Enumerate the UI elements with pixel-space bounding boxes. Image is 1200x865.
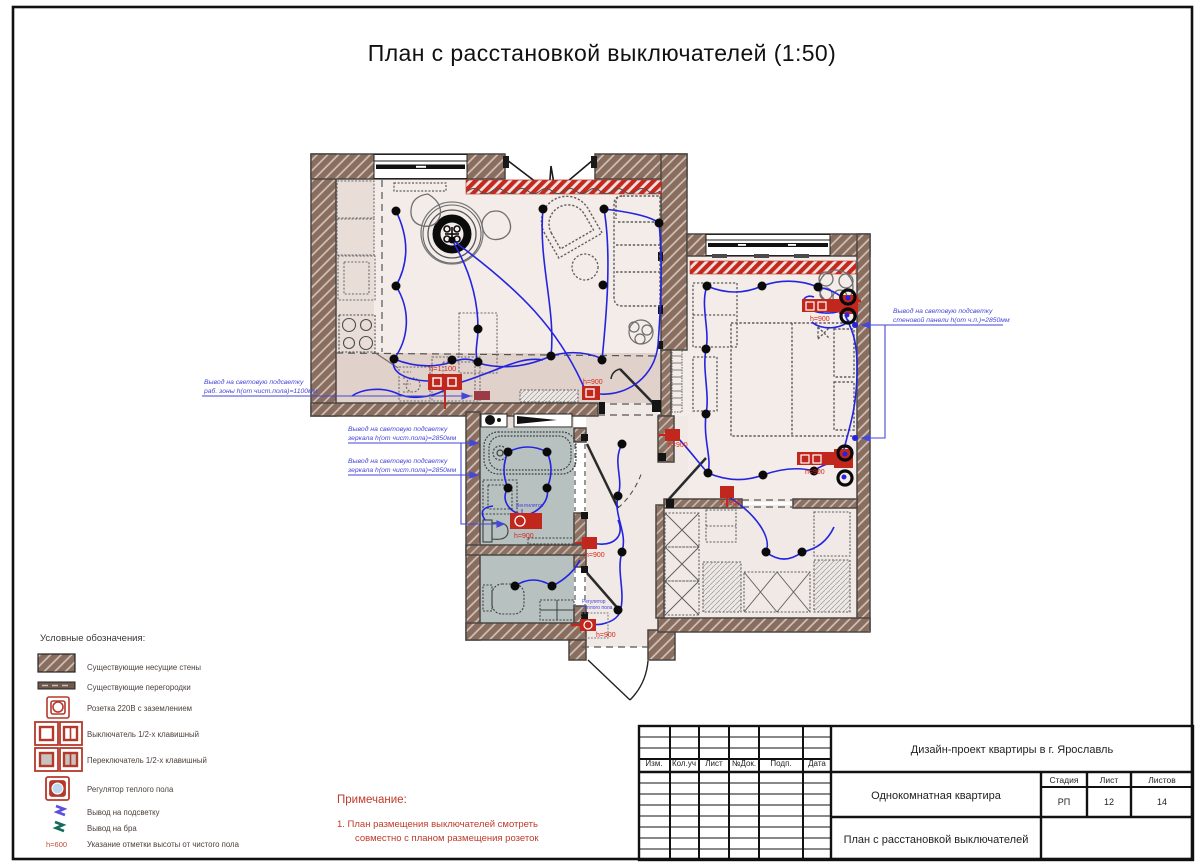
svg-text:h=1 100: h=1 100 [429, 364, 456, 373]
svg-text:№Док.: №Док. [732, 759, 756, 768]
svg-text:План с расстановкой выключател: План с расстановкой выключателей (1:50) [368, 40, 836, 66]
svg-text:14: 14 [1157, 797, 1167, 807]
svg-text:Примечание:: Примечание: [337, 794, 407, 806]
svg-text:Изм.: Изм. [645, 759, 662, 768]
svg-text:совместно с планом размещения: совместно с планом размещения розеток [355, 833, 539, 844]
svg-text:h=600: h=600 [46, 840, 67, 849]
svg-text:Регулятор теплого пола: Регулятор теплого пола [87, 785, 174, 794]
svg-text:Однокомнатная квартира: Однокомнатная квартира [871, 790, 1002, 802]
svg-text:План с расстановкой выключател: План с расстановкой выключателей [844, 834, 1029, 846]
svg-text:Стадия: Стадия [1050, 775, 1079, 785]
svg-text:зеркала h(от чист.пола)=2850мм: зеркала h(от чист.пола)=2850мм [347, 467, 457, 474]
svg-text:Лист: Лист [1100, 775, 1119, 785]
svg-text:Условные обозначения:: Условные обозначения: [40, 633, 145, 644]
svg-text:Вывод на бра: Вывод на бра [87, 824, 137, 833]
svg-text:Вывод на световую подсветку: Вывод на световую подсветку [204, 378, 304, 386]
svg-text:Розетка 220В с заземлением: Розетка 220В с заземлением [87, 704, 192, 713]
svg-text:зеркала h(от чист.пола)=2850мм: зеркала h(от чист.пола)=2850мм [347, 435, 457, 442]
svg-text:стеновой панели h(от ч.п.)=285: стеновой панели h(от ч.п.)=2850мм [893, 316, 1010, 324]
svg-text:теплого пола: теплого пола [582, 605, 613, 611]
svg-text:Вывод на подсветку: Вывод на подсветку [87, 808, 160, 817]
svg-text:Вывод на световую подсветку: Вывод на световую подсветку [348, 457, 448, 465]
svg-text:Листов: Листов [1148, 775, 1176, 785]
svg-text:h=900: h=900 [514, 533, 534, 540]
svg-text:Существующие перегородки: Существующие перегородки [87, 683, 191, 692]
svg-text:h=900: h=900 [721, 500, 741, 507]
svg-text:раб. зоны h(от чист.пола)=1100: раб. зоны h(от чист.пола)=1100мм [203, 387, 318, 395]
svg-text:Вывод на световую подсветку: Вывод на световую подсветку [348, 425, 448, 433]
svg-text:h=900: h=900 [668, 442, 688, 449]
svg-text:Вентилятор: Вентилятор [516, 503, 544, 509]
svg-text:Дизайн-проект квартиры в г. Яр: Дизайн-проект квартиры в г. Ярославль [911, 744, 1114, 756]
svg-text:Выключатель 1/2-х клавишный: Выключатель 1/2-х клавишный [87, 730, 199, 739]
svg-text:Лист: Лист [705, 759, 723, 768]
svg-text:Указание отметки высоты от чис: Указание отметки высоты от чистого пола [87, 840, 240, 849]
svg-text:Кол.уч: Кол.уч [672, 759, 696, 768]
svg-text:h=900: h=900 [596, 632, 616, 639]
svg-text:1. План размещения выключателе: 1. План размещения выключателей смотреть [337, 819, 538, 830]
svg-text:Переключатель 1/2-х клавишный: Переключатель 1/2-х клавишный [87, 756, 207, 765]
svg-text:Подп.: Подп. [770, 759, 791, 768]
svg-text:РП: РП [1058, 797, 1070, 807]
svg-text:Вывод на световую подсветку: Вывод на световую подсветку [893, 307, 993, 315]
svg-text:h=900: h=900 [583, 379, 603, 386]
svg-text:Дата: Дата [808, 759, 826, 768]
svg-text:h=900: h=900 [585, 552, 605, 559]
svg-text:h=900: h=900 [805, 469, 825, 476]
svg-text:Существующие несущие стены: Существующие несущие стены [87, 663, 201, 672]
svg-text:h=900: h=900 [810, 316, 830, 323]
svg-text:12: 12 [1104, 797, 1114, 807]
